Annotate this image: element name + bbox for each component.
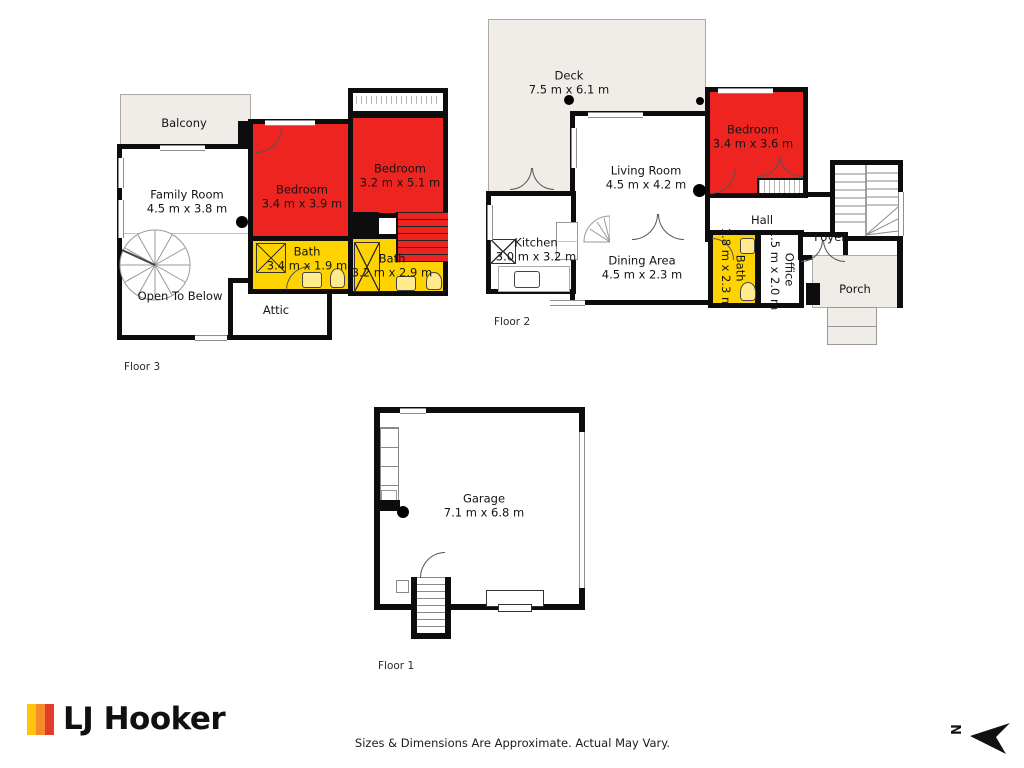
flag-stripe-orange: [36, 704, 45, 735]
label-family-room: Family Room 4.5 m x 3.8 m: [147, 188, 227, 217]
room-dims: 7.1 m x 6.8 m: [444, 506, 524, 520]
room-name: Kitchen: [496, 236, 576, 250]
window: [195, 335, 227, 341]
room-dims: 1.8 m x 2.3 m: [719, 228, 733, 308]
window: [160, 145, 205, 151]
label-bath-f2: Bath 1.8 m x 2.3 m: [719, 228, 748, 308]
floor-1-label: Floor 1: [378, 660, 414, 672]
room-name: Bath: [352, 252, 432, 266]
label-garage: Garage 7.1 m x 6.8 m: [444, 492, 524, 521]
bedroom-f3-b-deck-strip: [348, 88, 448, 116]
window: [579, 432, 585, 588]
floor-plan-canvas: Balcony Family Room 4.5 m x 3.8 m Bedroo…: [0, 0, 1024, 768]
room-dims: 3.2 m x 2.9 m: [352, 266, 432, 280]
room-dims: 3.4 m x 3.6 m: [713, 137, 793, 151]
window: [265, 120, 315, 126]
window: [118, 158, 124, 188]
wall-segment: [353, 212, 379, 238]
room-name: Attic: [263, 303, 289, 317]
room-dims: 3.4 m x 3.9 m: [262, 197, 342, 211]
room-dims: 3.0 m x 3.2 m: [496, 250, 576, 264]
label-office: Office 1.5 m x 2.0 m: [768, 230, 797, 310]
wall-segment: [374, 500, 400, 511]
label-deck: Deck 7.5 m x 6.1 m: [529, 69, 609, 98]
floor-2-label: Floor 2: [494, 316, 530, 328]
room-name: Balcony: [161, 116, 207, 130]
window: [118, 200, 124, 238]
room-name: Open To Below: [138, 289, 223, 303]
stairs-icon: [411, 577, 451, 639]
lj-hooker-flag-icon: [27, 704, 54, 735]
label-bath-f3-a: Bath 3.4 m x 1.9 m: [267, 245, 347, 274]
room-dims: 3.4 m x 1.9 m: [267, 259, 347, 273]
railing-hatch: [356, 96, 440, 104]
room-name: Foyer: [814, 230, 846, 244]
room-dims: 4.5 m x 4.2 m: [606, 178, 686, 192]
room-name: Bath: [267, 245, 347, 259]
winder-stairs-icon: [580, 198, 610, 244]
room-name: Office: [782, 230, 796, 310]
label-dining-area: Dining Area 4.5 m x 2.3 m: [602, 254, 682, 283]
room-name: Deck: [529, 69, 609, 83]
room-dims: 4.5 m x 3.8 m: [147, 202, 227, 216]
room-dims: 4.5 m x 2.3 m: [602, 268, 682, 282]
label-bedroom-f3-a: Bedroom 3.4 m x 3.9 m: [262, 183, 342, 212]
room-name: Bedroom: [713, 123, 793, 137]
closet-icon: [757, 178, 805, 195]
label-bath-f3-b: Bath 3.2 m x 2.9 m: [352, 252, 432, 281]
window: [898, 192, 904, 236]
flag-stripe-red: [45, 704, 54, 735]
label-open-to-below: Open To Below: [138, 289, 223, 303]
room-name: Bedroom: [262, 183, 342, 197]
window: [571, 128, 577, 168]
room-name: Dining Area: [602, 254, 682, 268]
floor-3-label: Floor 3: [124, 361, 160, 373]
label-attic: Attic: [263, 303, 289, 317]
point-marker: [696, 97, 704, 105]
room-name: Garage: [444, 492, 524, 506]
room-name: Hall: [751, 213, 773, 227]
stairs-icon: [835, 165, 898, 236]
window: [550, 300, 585, 306]
label-hall: Hall: [751, 213, 773, 227]
label-foyer: Foyer: [814, 230, 846, 244]
point-marker: [693, 184, 706, 197]
garage-door-step: [498, 604, 532, 612]
garage-step: [396, 580, 409, 593]
sink-icon: [514, 271, 540, 288]
window: [588, 112, 643, 118]
porch-step: [827, 307, 877, 327]
room-name: Family Room: [147, 188, 227, 202]
brand-name: LJ Hooker: [63, 701, 225, 737]
point-marker: [236, 216, 248, 228]
wall-segment: [897, 238, 903, 308]
wall-segment: [806, 283, 820, 305]
window: [487, 205, 493, 240]
lj-hooker-logo: LJ Hooker: [27, 701, 225, 737]
room-dims: 3.2 m x 5.1 m: [360, 176, 440, 190]
porch-step: [827, 326, 877, 345]
disclaimer-text: Sizes & Dimensions Are Approximate. Actu…: [340, 736, 685, 750]
window: [718, 88, 773, 94]
room-name: Living Room: [606, 164, 686, 178]
window: [400, 408, 426, 414]
label-bedroom-f2: Bedroom 3.4 m x 3.6 m: [713, 123, 793, 152]
label-porch: Porch: [839, 282, 871, 296]
room-name: Porch: [839, 282, 871, 296]
room-name: Bath: [733, 228, 747, 308]
point-marker: [397, 506, 409, 518]
label-bedroom-f3-b: Bedroom 3.2 m x 5.1 m: [360, 162, 440, 191]
north-letter: N: [950, 724, 965, 735]
north-arrow-icon: [968, 720, 1014, 758]
room-name: Bedroom: [360, 162, 440, 176]
wall-segment: [238, 121, 253, 148]
label-kitchen: Kitchen 3.0 m x 3.2 m: [496, 236, 576, 265]
label-living-room: Living Room 4.5 m x 4.2 m: [606, 164, 686, 193]
room-dims: 7.5 m x 6.1 m: [529, 83, 609, 97]
label-balcony: Balcony: [161, 116, 207, 130]
room-dims: 1.5 m x 2.0 m: [768, 230, 782, 310]
flag-stripe-yellow: [27, 704, 36, 735]
